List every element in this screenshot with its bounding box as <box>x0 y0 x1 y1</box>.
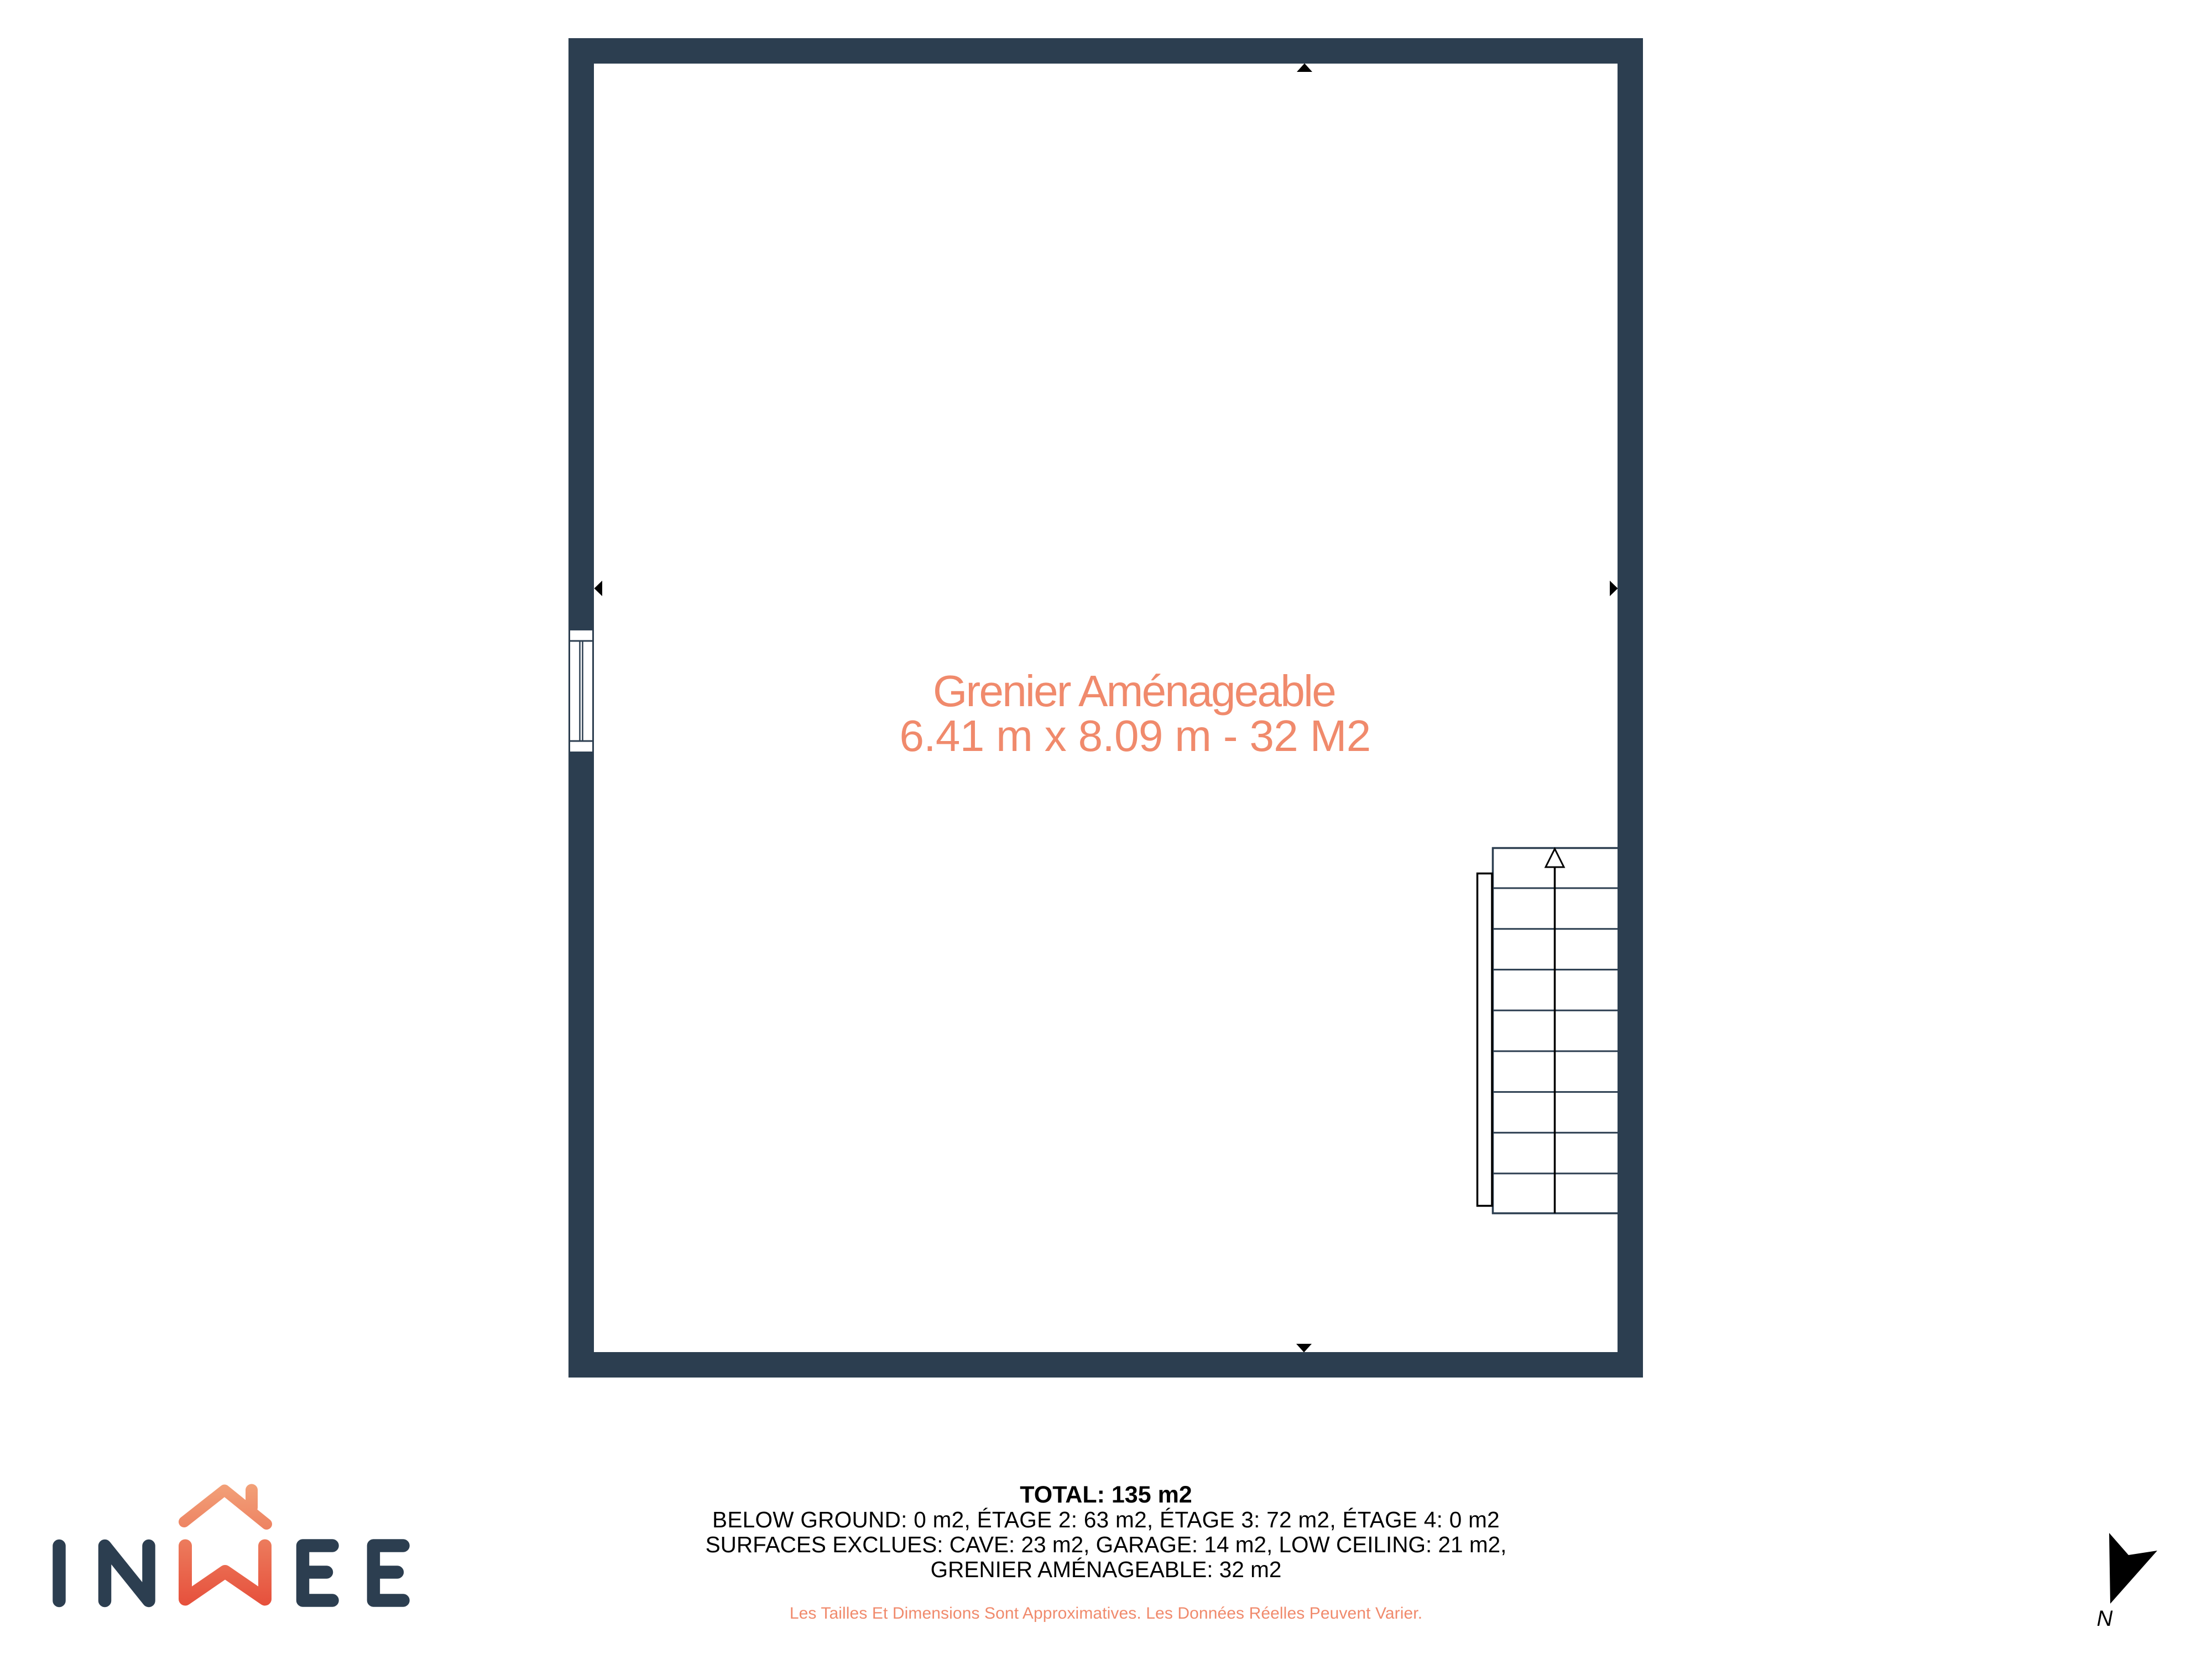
svg-text:BELOW GROUND: 0 m2, ÉTAGE 2: 6: BELOW GROUND: 0 m2, ÉTAGE 2: 63 m2, ÉTAG… <box>712 1507 1500 1532</box>
svg-text:GRENIER AMÉNAGEABLE: 32 m2: GRENIER AMÉNAGEABLE: 32 m2 <box>931 1557 1282 1582</box>
svg-text:Les Tailles Et Dimensions Sont: Les Tailles Et Dimensions Sont Approxima… <box>790 1604 1422 1623</box>
svg-text:6.41 m x 8.09 m - 32 M2: 6.41 m x 8.09 m - 32 M2 <box>899 711 1370 760</box>
svg-text:SURFACES EXCLUES: CAVE: 23 m2,: SURFACES EXCLUES: CAVE: 23 m2, GARAGE: 1… <box>706 1532 1507 1557</box>
svg-text:TOTAL: 135 m2: TOTAL: 135 m2 <box>1020 1481 1192 1508</box>
svg-text:Grenier Aménageable: Grenier Aménageable <box>933 666 1335 716</box>
svg-text:N: N <box>2097 1606 2113 1631</box>
